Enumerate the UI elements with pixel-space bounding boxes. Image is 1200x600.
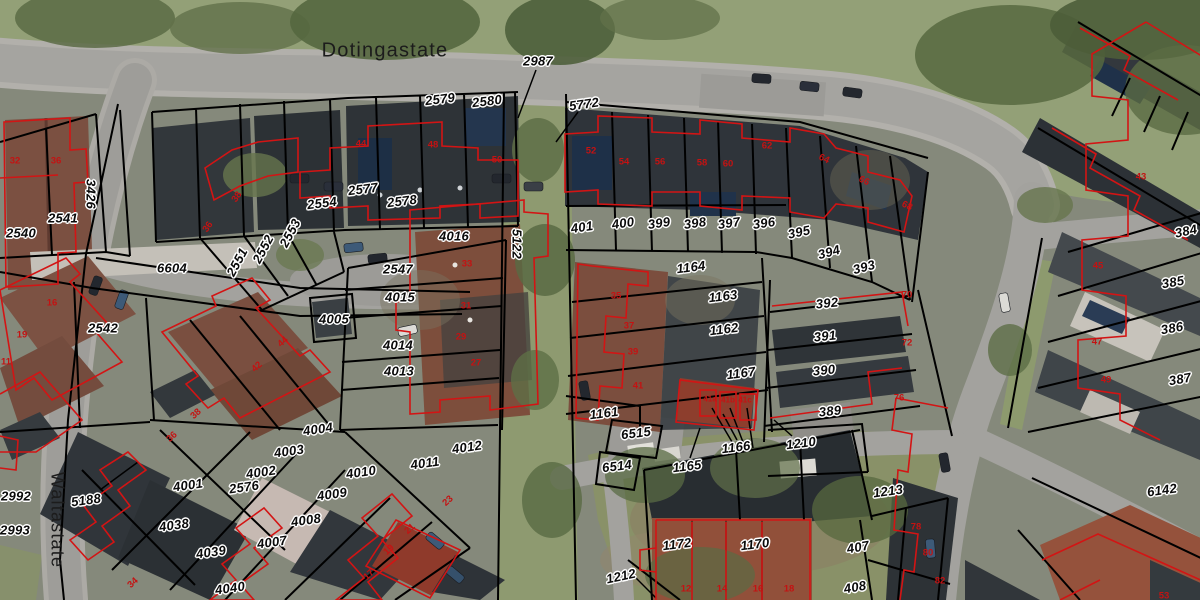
aerial-basemap-svg (0, 0, 1200, 600)
map-viewport[interactable]: 2987257925805772257725782554255325522551… (0, 0, 1200, 600)
